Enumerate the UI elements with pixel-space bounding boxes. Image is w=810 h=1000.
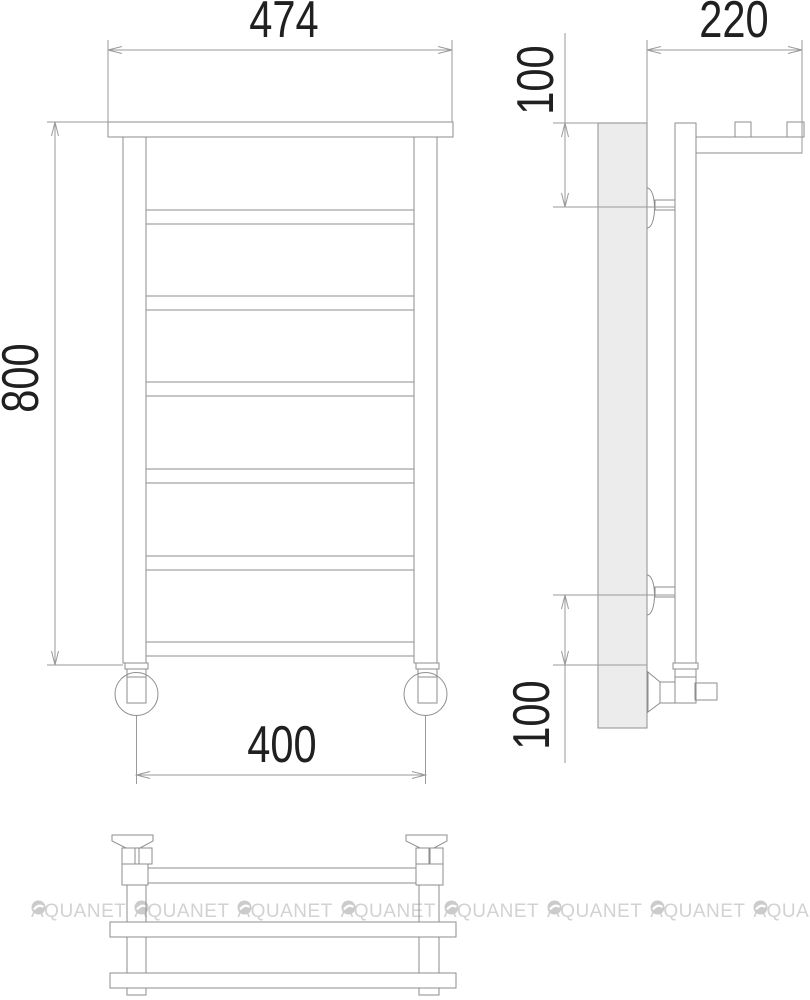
dim-label-pipe-spacing: 400: [234, 725, 330, 765]
bottom-valve-right: [406, 835, 447, 865]
side-mounting-panel: [598, 123, 647, 728]
drawing-geometry: [0, 0, 810, 1000]
front-rungs: [146, 210, 414, 656]
technical-drawing-canvas: AQUANETAQUANETAQUANETAQUANETAQUANETAQUAN…: [0, 0, 810, 1000]
dim-220-lines: [647, 40, 802, 153]
side-vertical-tube: [675, 123, 696, 663]
dim-label-side-depth: 220: [686, 0, 782, 40]
front-view: [108, 122, 453, 716]
side-wall-bracket-top: [647, 188, 675, 228]
front-foot-valve-right: [404, 663, 447, 716]
dim-800-lines: [47, 122, 123, 665]
dim-label-bottom-bracket-offset: 100: [512, 667, 552, 763]
bottom-shelf-bars: [110, 922, 456, 988]
side-shelf: [696, 122, 804, 153]
bottom-valve-body-left: [122, 864, 148, 885]
side-valve-assembly: [648, 663, 717, 712]
bottom-view: [110, 835, 456, 995]
bottom-top-rung: [148, 868, 416, 883]
front-vertical-tubes: [123, 137, 437, 663]
dim-label-top-bracket-offset: 100: [516, 32, 556, 128]
bottom-valve-left: [112, 835, 153, 865]
front-foot-valve-left: [115, 663, 158, 716]
side-view: [598, 122, 804, 728]
dim-474-lines: [108, 40, 452, 122]
dim-label-front-height: 800: [1, 330, 41, 426]
bottom-valve-body-right: [416, 864, 443, 885]
front-shelf: [108, 122, 453, 153]
dim-label-front-width: 474: [236, 0, 332, 40]
